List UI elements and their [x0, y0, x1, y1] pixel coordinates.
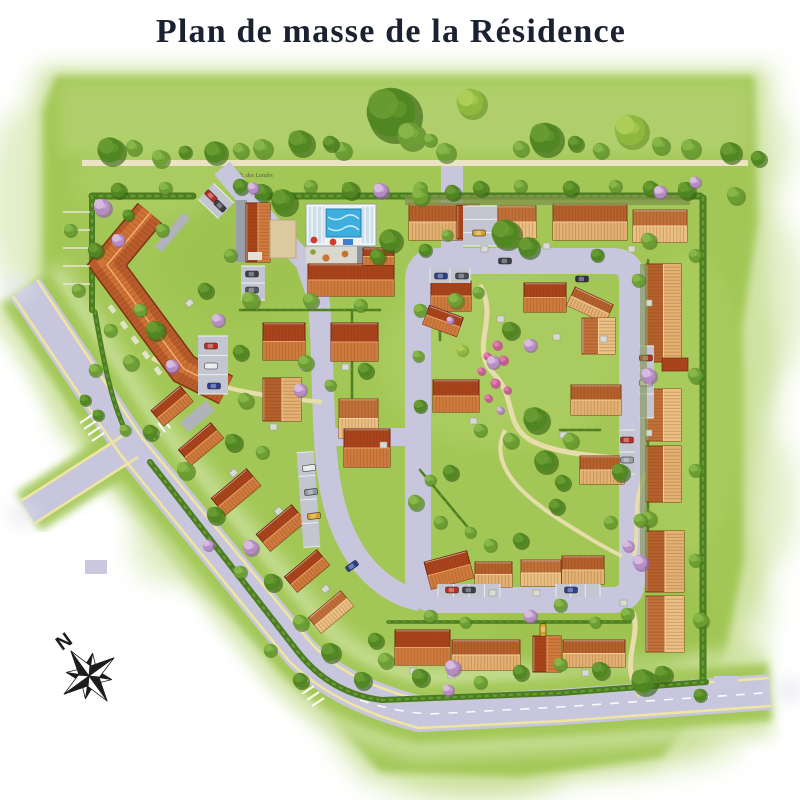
svg-text:N: N — [52, 629, 77, 655]
